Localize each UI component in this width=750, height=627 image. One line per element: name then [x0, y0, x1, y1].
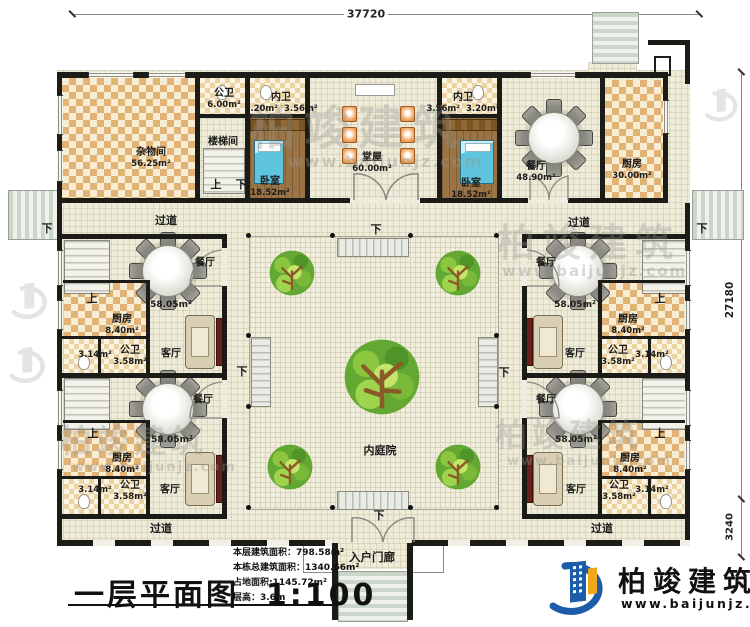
u1-part-h2	[62, 336, 150, 339]
u2-dining-label: 餐厅	[193, 391, 213, 406]
room-label-bedroom-right: 卧室18.52m²	[451, 178, 490, 200]
window	[57, 95, 63, 135]
watermark-logo-icon	[6, 278, 52, 324]
unit1-stair	[64, 240, 110, 294]
wall-rwing-mid	[522, 373, 690, 378]
room-label-kitchen-main: 厨房30.00m²	[612, 159, 651, 181]
tree-icon	[434, 443, 482, 491]
brand-name: 柏竣建筑	[618, 560, 750, 600]
stat-land-area: 占地面积:1145.72m²	[233, 576, 359, 591]
storage-room-floor	[62, 78, 195, 198]
u4-marker-up: 上	[655, 425, 666, 441]
hall-double-door	[352, 170, 420, 200]
porch-wall-e	[407, 543, 413, 620]
watermark-logo-icon	[4, 342, 50, 388]
courtyard-down-left: 下	[237, 363, 248, 379]
sofa-unit1	[185, 315, 215, 369]
marker-up: 上	[211, 176, 222, 192]
window	[685, 300, 691, 330]
sofa-unit3	[533, 315, 563, 369]
u1-living-label: 客厅	[161, 345, 181, 360]
stat-floor-height: 层高：3.6m	[233, 591, 359, 606]
corridor-label-se: 过道	[591, 520, 613, 536]
u2-part-wc	[98, 476, 101, 514]
corridor-label-sw: 过道	[150, 520, 172, 536]
window	[685, 390, 691, 426]
room-label-hall: 堂屋60.00m²	[352, 152, 391, 174]
watermark-logo-icon	[700, 84, 742, 126]
tree-icon	[434, 249, 482, 297]
courtyard-step-right	[478, 337, 498, 407]
u2-wc-label: 公卫3.58m²	[113, 480, 147, 502]
ext-stair-down-left: 下	[42, 220, 53, 236]
dim-line-right	[741, 72, 742, 557]
room-label-public-wc-top: 公卫6.00m²	[207, 88, 241, 110]
floor-plan-canvas: 杂物间56.25m² 公卫6.00m² 楼梯间 上 下 内卫 3.20m²3.5…	[0, 0, 750, 627]
marker-down: 下	[236, 176, 247, 192]
room-label-dining-main: 餐厅48.90m²	[516, 161, 555, 183]
toilet	[78, 494, 90, 509]
watermark-url: www.baijunjz.com	[502, 262, 687, 280]
courtyard-down-right: 下	[499, 364, 510, 380]
u4-part-wc	[648, 476, 651, 514]
u1-kitchen-label: 厨房8.40m²	[105, 314, 139, 336]
u4-dining-label: 餐厅	[536, 391, 556, 406]
plan-stats: 本层建筑面积：798.58m² 本栋总建筑面积：1340.66m² 占地面积:1…	[233, 546, 359, 605]
u4-dining-area: 58.05m²	[555, 435, 597, 445]
column-dot	[246, 233, 251, 238]
column-dot	[408, 505, 413, 510]
u2-part-h2	[62, 476, 150, 479]
courtyard-label: 内庭院	[364, 442, 397, 458]
window	[57, 150, 63, 182]
window	[148, 72, 186, 78]
ext-stair-down-right: 下	[697, 220, 708, 236]
room-label-storage: 杂物间56.25m²	[131, 147, 170, 169]
column-dot	[408, 233, 413, 238]
window	[88, 72, 134, 78]
dim-label-right: 27180	[721, 282, 739, 319]
u4-part-h2	[600, 476, 688, 479]
tree-icon	[268, 249, 316, 297]
corridor-label-nw: 过道	[155, 212, 177, 228]
courtyard-step-top	[337, 238, 409, 257]
room-label-bedroom-left: 卧室18.52m²	[250, 176, 289, 198]
u1-part-h1	[62, 280, 150, 283]
toilet	[660, 494, 672, 509]
tree-icon	[342, 337, 422, 417]
u3-dining-label: 餐厅	[536, 254, 556, 269]
window	[663, 100, 669, 134]
u2-kitchen-label: 厨房8.40m²	[105, 453, 139, 475]
window	[57, 250, 63, 286]
room-label-inner-wc-left: 内卫 3.20m²3.56m²	[244, 92, 317, 114]
wall-rwing-s	[522, 514, 690, 519]
dim-label-porch: 3240	[722, 513, 739, 541]
wall-lwing-s	[57, 514, 227, 519]
u4-wc-area-b: 3.14m²	[635, 485, 669, 495]
wall-lwing-mid	[57, 373, 227, 378]
courtyard-step-left	[251, 337, 271, 407]
brand-logo-icon	[543, 554, 613, 620]
column-dot	[246, 404, 251, 409]
u1-marker-up: 上	[87, 290, 98, 306]
window	[685, 440, 691, 470]
column-dot	[246, 505, 251, 510]
column-dot	[494, 505, 499, 510]
watermark-text: 柏竣建筑	[495, 410, 643, 456]
stat-total-area: 本栋总建筑面积：1340.66m²	[233, 561, 359, 576]
u1-wc-area-b: 3.14m²	[78, 350, 112, 360]
column-dot	[246, 333, 251, 338]
u1-wc-label: 公卫3.58m²	[113, 345, 147, 367]
u3-wc-area-b: 3.14m²	[635, 350, 669, 360]
wall-ne-ledge-v	[685, 40, 690, 84]
u1-dining-label: 餐厅	[195, 254, 215, 269]
u3-dining-area: 58.05m²	[554, 300, 596, 310]
dim-label-top: 37720	[344, 8, 388, 21]
room-label-stair-room: 楼梯间	[208, 133, 238, 148]
u3-wc-label: 公卫3.58m²	[601, 345, 635, 367]
exterior-stair-top	[592, 12, 639, 64]
wall-lwing-n	[57, 234, 227, 239]
wall-ne-ledge-h	[648, 40, 690, 45]
wall-bedroom-r-e	[497, 72, 502, 198]
corridor-label-ne: 过道	[568, 214, 590, 230]
column-dot	[494, 404, 499, 409]
kitchen-main-floor	[605, 80, 663, 203]
u2-marker-up: 上	[88, 425, 99, 441]
porch-side-right	[412, 543, 444, 573]
wall-east-north	[663, 72, 668, 203]
u2-dining-area: 58.05m²	[151, 435, 193, 445]
u4-wc-label: 公卫3.58m²	[602, 480, 636, 502]
u3-part-h2	[600, 336, 688, 339]
u2-living-label: 客厅	[160, 481, 180, 496]
tree-icon	[266, 443, 314, 491]
u1-dining-area: 58.05m²	[150, 300, 192, 310]
courtyard-down-bottom: 下	[374, 507, 385, 523]
wall-storage-e	[195, 72, 200, 198]
u4-kitchen-label: 厨房8.40m²	[613, 453, 647, 475]
column-dot	[330, 505, 335, 510]
brand-url: www.baijunjz.com	[621, 596, 750, 611]
room-label-inner-wc-right: 内卫 3.56m²3.20m²	[426, 92, 499, 114]
u3-kitchen-label: 厨房8.40m²	[611, 314, 645, 336]
column-dot	[330, 233, 335, 238]
window	[530, 72, 576, 78]
wall-south-right	[412, 540, 690, 546]
u4-living-label: 客厅	[566, 481, 586, 496]
wall-kitchen-main-w	[600, 76, 605, 203]
u3-marker-up: 上	[655, 290, 666, 306]
watermark-url: www.baijunjz.com	[72, 460, 237, 475]
window	[57, 300, 63, 330]
stat-floor-area: 本层建筑面积：798.58m²	[233, 546, 359, 561]
courtyard-down-top: 下	[371, 221, 382, 237]
u3-part-h1	[600, 280, 688, 283]
ne-column	[654, 56, 671, 76]
column-dot	[494, 333, 499, 338]
u3-living-label: 客厅	[565, 345, 585, 360]
u2-wc-area-b: 3.14m²	[78, 485, 112, 495]
